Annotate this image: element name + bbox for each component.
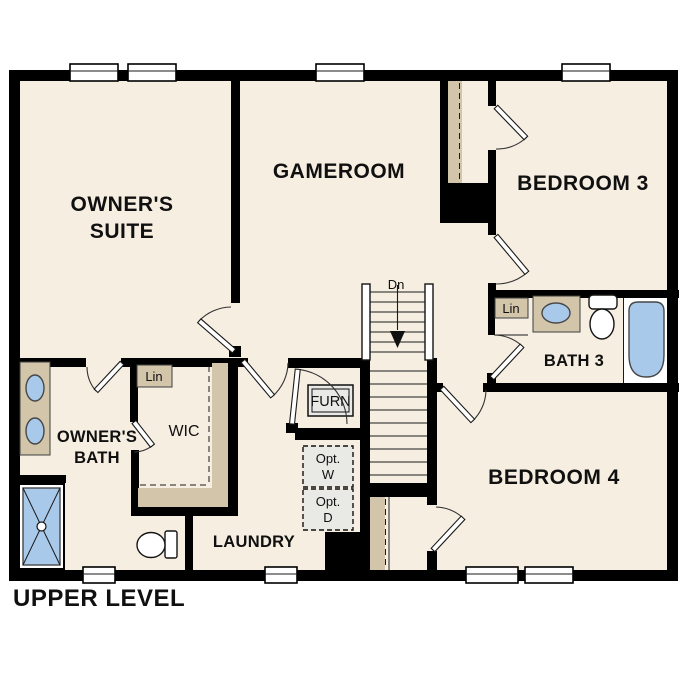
furnace-label: FURN — [310, 394, 350, 410]
laundry-label: LAUNDRY — [213, 533, 295, 551]
linen-label-bath3: Lin — [502, 301, 519, 316]
floorplan-page: Dn — [0, 0, 687, 687]
floorplan-drawing: Dn — [0, 0, 687, 687]
wall — [185, 516, 193, 570]
window — [265, 567, 297, 583]
stair-railing — [425, 284, 433, 360]
wall — [488, 290, 679, 298]
wall — [231, 79, 240, 303]
wall — [20, 475, 66, 483]
wic-shelf — [138, 488, 228, 507]
owners-bath-label-line1: OWNER'S — [57, 428, 137, 446]
page-title: UPPER LEVEL — [13, 585, 185, 612]
opt-washer-label-line2: W — [322, 467, 335, 482]
toilet-bowl — [590, 309, 614, 339]
window — [562, 64, 610, 81]
chase — [370, 497, 385, 570]
bath3-label: BATH 3 — [544, 352, 604, 370]
wall — [131, 507, 238, 516]
wall — [427, 551, 437, 570]
owners-bath-label-line2: BATH — [74, 449, 120, 467]
linen-label-owners: Lin — [145, 369, 162, 384]
toilet-bowl — [137, 533, 165, 558]
wall — [228, 358, 238, 516]
owners-suite-label-line2: SUITE — [90, 220, 154, 243]
shower-drain — [37, 522, 46, 531]
window — [83, 567, 115, 583]
window — [525, 567, 573, 583]
wall — [288, 358, 370, 368]
wic-shelf — [212, 363, 228, 490]
opt-washer-label-line1: Opt. — [316, 451, 341, 466]
wall — [295, 428, 370, 440]
sink-basin — [26, 418, 44, 444]
window — [128, 64, 176, 81]
wall — [440, 79, 448, 183]
owners-suite-label-line1: OWNER'S — [71, 193, 174, 216]
bedroom4-label: BEDROOM 4 — [488, 466, 620, 489]
stairs-down-label: Dn — [388, 277, 405, 292]
window — [466, 567, 518, 583]
wic-label: WIC — [168, 423, 199, 440]
sink-basin — [542, 303, 570, 323]
wall — [440, 183, 496, 223]
wall — [488, 298, 495, 335]
opt-dryer-label-line2: D — [323, 510, 332, 525]
window — [316, 64, 364, 81]
wall — [131, 450, 139, 510]
toilet-tank — [589, 295, 617, 309]
stair-railing — [362, 284, 370, 360]
opt-dryer-label-line1: Opt. — [316, 494, 341, 509]
window — [70, 64, 118, 81]
wall — [366, 483, 432, 497]
wall — [667, 70, 678, 581]
gameroom-label: GAMEROOM — [273, 160, 405, 183]
wall — [483, 383, 679, 392]
bedroom3-label: BEDROOM 3 — [517, 172, 649, 195]
bathtub — [629, 302, 664, 377]
sink-basin — [26, 375, 44, 401]
toilet-tank — [165, 531, 177, 558]
wall — [325, 532, 368, 570]
wall — [488, 79, 496, 106]
wall — [427, 358, 437, 505]
